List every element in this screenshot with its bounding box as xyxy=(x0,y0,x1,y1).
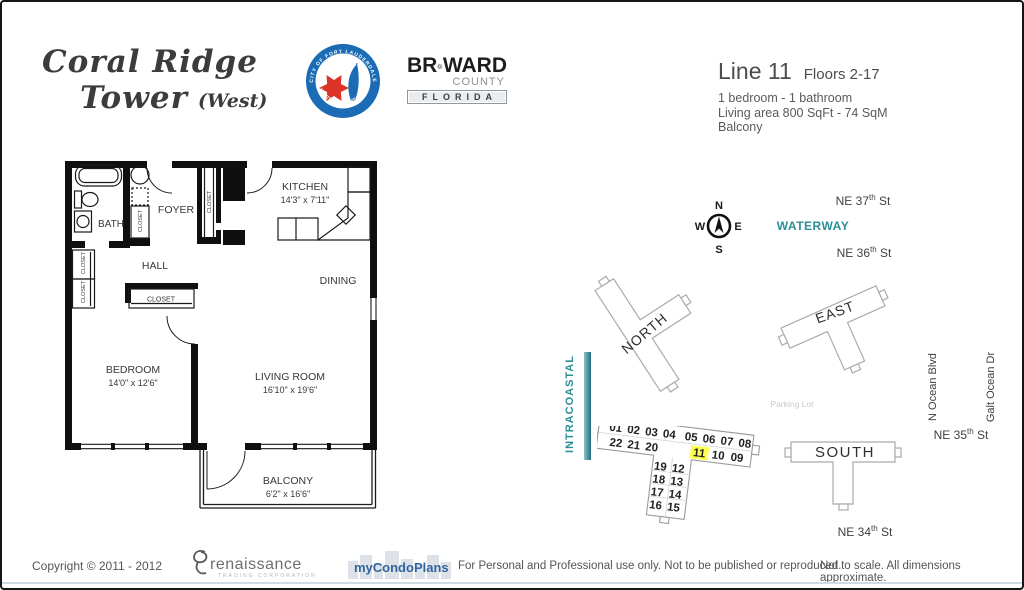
unit-21: 21 xyxy=(627,439,642,453)
unit-11-highlighted: 11 xyxy=(692,447,706,460)
toilet-icon xyxy=(75,191,82,208)
ne37-text: NE 37 xyxy=(836,194,869,208)
balcony-label: BALCONY xyxy=(263,475,313,487)
unit-03: 03 xyxy=(644,426,658,439)
kitchen-sink-icon xyxy=(337,206,355,224)
room-labels: BATH FOYER KITCHEN 14'3" x 7'11" HALL DI… xyxy=(81,181,356,499)
building-title-line2: Tower xyxy=(80,80,188,116)
unit-13: 13 xyxy=(670,475,684,488)
renaissance-logo-text: renaissance xyxy=(210,556,302,574)
unit-04: 04 xyxy=(662,428,677,442)
copyright-text: Copyright © 2011 - 2012 xyxy=(32,559,162,573)
waterway-label: WATERWAY xyxy=(763,219,863,233)
unit-06: 06 xyxy=(702,433,716,446)
floors-label: Floors 2-17 xyxy=(804,66,880,83)
closet-label-hall1: CLOSET xyxy=(81,251,87,274)
living-room-label: LIVING ROOM xyxy=(255,371,325,383)
mycondoplans-logo-text: myCondoPlans xyxy=(354,560,449,575)
broward-post: WARD xyxy=(443,54,507,78)
parking-lot-label: Parking Lot xyxy=(762,399,822,409)
floorplan-sheet: Coral Ridge Tower (West) CITY OF FORT LA… xyxy=(0,0,1024,590)
living-area-label: Living area 800 SqFt - 74 SqM xyxy=(718,106,888,121)
unit-22: 22 xyxy=(609,437,623,450)
street-galt-ocean-dr: Galt Ocean Dr xyxy=(985,342,997,432)
usage-disclaimer-text: For Personal and Professional use only. … xyxy=(458,560,841,572)
closet-label-foyer: CLOSET xyxy=(138,209,144,232)
bed-bath-label: 1 bedroom - 1 bathroom xyxy=(718,91,888,106)
closet-label: CLOSET xyxy=(147,297,176,304)
floor-plan-walls xyxy=(65,161,377,450)
street-n-ocean-blvd: N Ocean Blvd xyxy=(927,342,939,432)
closet-label-center: CLOSET xyxy=(207,190,213,213)
unit-08: 08 xyxy=(738,438,753,452)
bedroom-dims: 14'0" x 12'6" xyxy=(108,378,157,388)
unit-15: 15 xyxy=(666,501,681,515)
compass-n: N xyxy=(715,200,723,212)
compass-s: S xyxy=(715,244,722,256)
foyer-label: FOYER xyxy=(158,204,195,216)
building-south: SOUTH xyxy=(775,432,925,527)
unit-16: 16 xyxy=(648,499,662,512)
stove-icon xyxy=(278,218,318,240)
bedroom-label: BEDROOM xyxy=(106,364,160,376)
door-arcs xyxy=(147,168,272,489)
floor-plan: BATH FOYER KITCHEN 14'3" x 7'11" HALL DI… xyxy=(55,148,405,540)
building-east: EAST xyxy=(770,268,915,378)
broward-county-logo: BRWARD COUNTY FLORIDA xyxy=(407,54,507,104)
renaissance-sub-text: TRADING CORPORATION xyxy=(218,573,317,579)
compass-e: E xyxy=(734,221,741,233)
compass-icon: N W E S xyxy=(692,196,746,256)
balcony-label: Balcony xyxy=(718,120,888,135)
building-title-suffix: (West) xyxy=(198,90,267,112)
unit-18: 18 xyxy=(652,473,667,487)
broward-word: BRWARD xyxy=(407,54,507,78)
kitchen-dims: 14'3" x 7'11" xyxy=(281,195,330,205)
unit-19: 19 xyxy=(653,460,667,473)
line-label: Line 11 xyxy=(718,58,792,84)
street-ne36: NE 36th St xyxy=(804,245,924,260)
building-north: NORTH xyxy=(565,262,715,412)
living-room-dims: 16'10" x 19'6" xyxy=(263,385,317,395)
fort-lauderdale-seal-icon: CITY OF FORT LAUDERDALE VENICE OF AMERIC… xyxy=(305,43,381,119)
bath-label: BATH xyxy=(98,219,124,230)
washer-icon xyxy=(131,166,149,184)
broward-florida-label: FLORIDA xyxy=(407,90,507,104)
building-title-line1: Coral Ridge xyxy=(42,44,258,80)
unit-09: 09 xyxy=(730,452,744,465)
unit-20: 20 xyxy=(644,441,658,454)
unit-info: Line 11Floors 2-17 1 bedroom - 1 bathroo… xyxy=(718,58,888,135)
unit-17: 17 xyxy=(650,486,664,499)
compass-w: W xyxy=(695,221,706,233)
ne36-text: NE 36 xyxy=(837,246,870,260)
scale-disclaimer-text: Not to scale. All dimensions approximate… xyxy=(820,560,1024,584)
unit-01: 01 xyxy=(609,426,624,435)
unit-07: 07 xyxy=(720,435,734,448)
unit-02: 02 xyxy=(626,426,640,437)
fridge-icon xyxy=(348,167,370,192)
footer-divider xyxy=(0,582,1024,584)
broward-pre: BR xyxy=(407,54,437,78)
unit-10: 10 xyxy=(711,449,725,462)
unit-05: 05 xyxy=(684,431,699,445)
balcony-dims: 6'2" x 16'6" xyxy=(266,489,310,499)
unit-14: 14 xyxy=(668,488,683,502)
street-ne37: NE 37th St xyxy=(803,193,923,208)
ne34-text: NE 34 xyxy=(838,525,871,539)
unit-12: 12 xyxy=(671,463,685,476)
hall-label: HALL xyxy=(142,260,168,272)
building-south-label: SOUTH xyxy=(815,444,875,461)
building-west-units: 01 02 03 04 05 06 07 08 22 21 20 11 10 0… xyxy=(597,426,787,546)
closet-label-hall2: CLOSET xyxy=(81,280,87,303)
kitchen-label: KITCHEN xyxy=(282,181,328,193)
dining-label: DINING xyxy=(320,275,357,287)
